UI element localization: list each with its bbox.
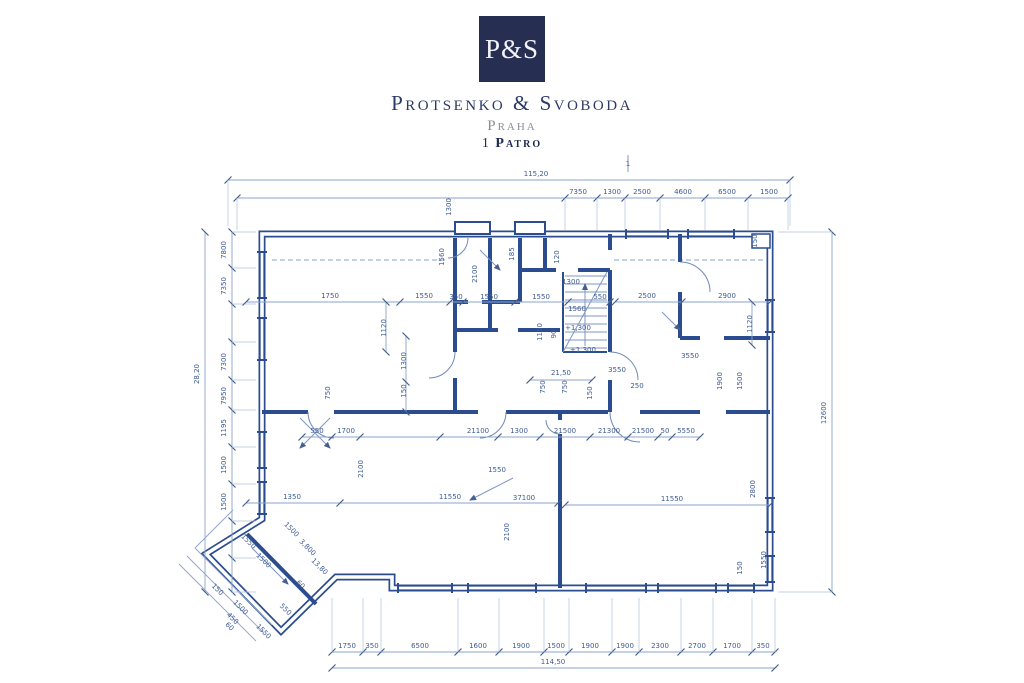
dim-chain-bottom-chain: 1750350650016001900150019001900230027001… <box>329 598 779 656</box>
dim-chain-v-aux-1 <box>403 333 410 416</box>
dim-label: 1560 <box>568 305 586 313</box>
dim-label: 6500 <box>411 642 429 650</box>
dim-label: 1500 <box>736 372 744 390</box>
dim-label: 3550 <box>608 366 626 374</box>
dim-label: 4600 <box>674 188 692 196</box>
dim-label: 1550 <box>532 293 550 301</box>
dim-label: 2500 <box>633 188 651 196</box>
dim-label: 1300 <box>445 198 453 216</box>
dim-label: 90 <box>550 330 558 339</box>
dim-label: 37100 <box>513 494 535 502</box>
dim-label: 250 <box>630 382 643 390</box>
dim-label: 1500 <box>282 520 300 538</box>
dim-label: 21500 <box>632 427 654 435</box>
dim-label: 2100 <box>471 265 479 283</box>
dim-label: 150 <box>210 582 225 597</box>
dim-label: 1300 <box>400 352 408 370</box>
dim-chain-top-chain: 735013002500460065001500 <box>234 188 792 230</box>
dim-label: 1900 <box>616 642 634 650</box>
dim-label: 1550 <box>488 466 506 474</box>
dim-label: 1900 <box>512 642 530 650</box>
dim-label: 350 <box>365 642 378 650</box>
dim-label: +1,300 <box>570 346 596 354</box>
dim-label: 1500 <box>760 188 778 196</box>
dim-chain-right-chain: 12600 <box>778 229 836 596</box>
dim-label: 1900 <box>581 642 599 650</box>
dim-label: 1700 <box>337 427 355 435</box>
dim-label: 2900 <box>718 292 736 300</box>
dim-label: 1195 <box>220 419 228 437</box>
dim-label: 1550 <box>239 532 257 550</box>
dim-label: 1750 <box>338 642 356 650</box>
dim-label: 150 <box>400 384 408 397</box>
dim-label: 1300 <box>603 188 621 196</box>
dim-label: 1 <box>626 160 630 168</box>
dim-label: 7950 <box>220 387 228 405</box>
dim-label: 150 <box>586 386 594 399</box>
dim-label: 185 <box>508 247 516 260</box>
dim-label: 2700 <box>688 642 706 650</box>
dim-label: 750 <box>324 386 332 399</box>
dim-label: 1500 <box>220 456 228 474</box>
dim-label: 550 <box>310 427 323 435</box>
dim-label: 115,20 <box>524 170 549 178</box>
dim-label: 1120 <box>380 319 388 337</box>
dim-label: 550 <box>593 293 606 301</box>
dim-label: 114,50 <box>541 658 566 666</box>
dim-label: 21,50 <box>551 369 571 377</box>
dim-label: 2500 <box>638 292 656 300</box>
dim-label: 1500 <box>220 493 228 511</box>
dim-label: 7350 <box>220 277 228 295</box>
dim-label: 1560 <box>438 248 446 266</box>
dim-chain-bottom-total: 114,50 <box>329 658 779 672</box>
dim-label: 1120 <box>746 315 754 333</box>
dim-label: +1,300 <box>565 324 591 332</box>
dim-chain-room-right-bottom: 11550 <box>562 495 774 509</box>
dim-label: 1550 <box>254 622 272 640</box>
dim-label: 1600 <box>469 642 487 650</box>
dim-label: 6500 <box>718 188 736 196</box>
dim-label: 350 <box>449 293 462 301</box>
interior-walls <box>247 234 770 604</box>
dim-label: 21100 <box>467 427 489 435</box>
dim-label: 7800 <box>220 241 228 259</box>
dim-label: 1300 <box>510 427 528 435</box>
floor-plan: 115,2073501300250046006500150028,2078007… <box>0 0 1024 683</box>
dim-label: 60 <box>294 579 306 591</box>
dim-label: 21300 <box>598 427 620 435</box>
dim-label: 1750 <box>321 292 339 300</box>
dim-label: 1700 <box>723 642 741 650</box>
dim-label: 2100 <box>503 523 511 541</box>
dim-label: 3550 <box>681 352 699 360</box>
dim-label: 28,20 <box>193 364 201 384</box>
dim-label: 120 <box>553 250 561 263</box>
dim-label: 3,800 <box>297 538 317 558</box>
dim-label: 1500 <box>547 642 565 650</box>
dim-label: 1350 <box>283 493 301 501</box>
dim-label: 12600 <box>820 402 828 424</box>
dim-label: 1550 <box>480 293 498 301</box>
dim-label: 7350 <box>569 188 587 196</box>
dim-label: 750 <box>561 380 569 393</box>
dim-chain-mid-chain: 5501700211001300215002130021500505550 <box>299 427 704 441</box>
dim-label: 7300 <box>220 353 228 371</box>
dim-label: 150 <box>751 234 759 247</box>
dim-label: 5550 <box>677 427 695 435</box>
dim-label: 2100 <box>357 460 365 478</box>
page: P&S Protsenko & Svoboda Praha 1Patro <box>0 0 1024 683</box>
dim-label: 550 <box>278 602 293 617</box>
dim-label: 11550 <box>661 495 683 503</box>
dim-label: 1550 <box>415 292 433 300</box>
dim-label: 21500 <box>554 427 576 435</box>
dim-label: 150 <box>736 561 744 574</box>
dim-label: 11550 <box>439 493 461 501</box>
dim-chain-left-total: 28,20 <box>193 229 209 596</box>
dim-label: 350 <box>756 642 769 650</box>
dim-label: 750 <box>539 380 547 393</box>
dim-label: 1500 <box>254 551 272 569</box>
dim-label: 50 <box>661 427 670 435</box>
dim-label: 2300 <box>651 642 669 650</box>
dim-label: 13,80 <box>309 557 329 577</box>
dim-chain-room-left-top: 1750155035015501550550 <box>243 292 614 306</box>
dim-label: 1300 <box>562 278 580 286</box>
dim-label: 1900 <box>716 372 724 390</box>
dim-label: 1550 <box>760 551 768 569</box>
dim-label: 2800 <box>749 480 757 498</box>
dim-label: 1150 <box>536 323 544 341</box>
